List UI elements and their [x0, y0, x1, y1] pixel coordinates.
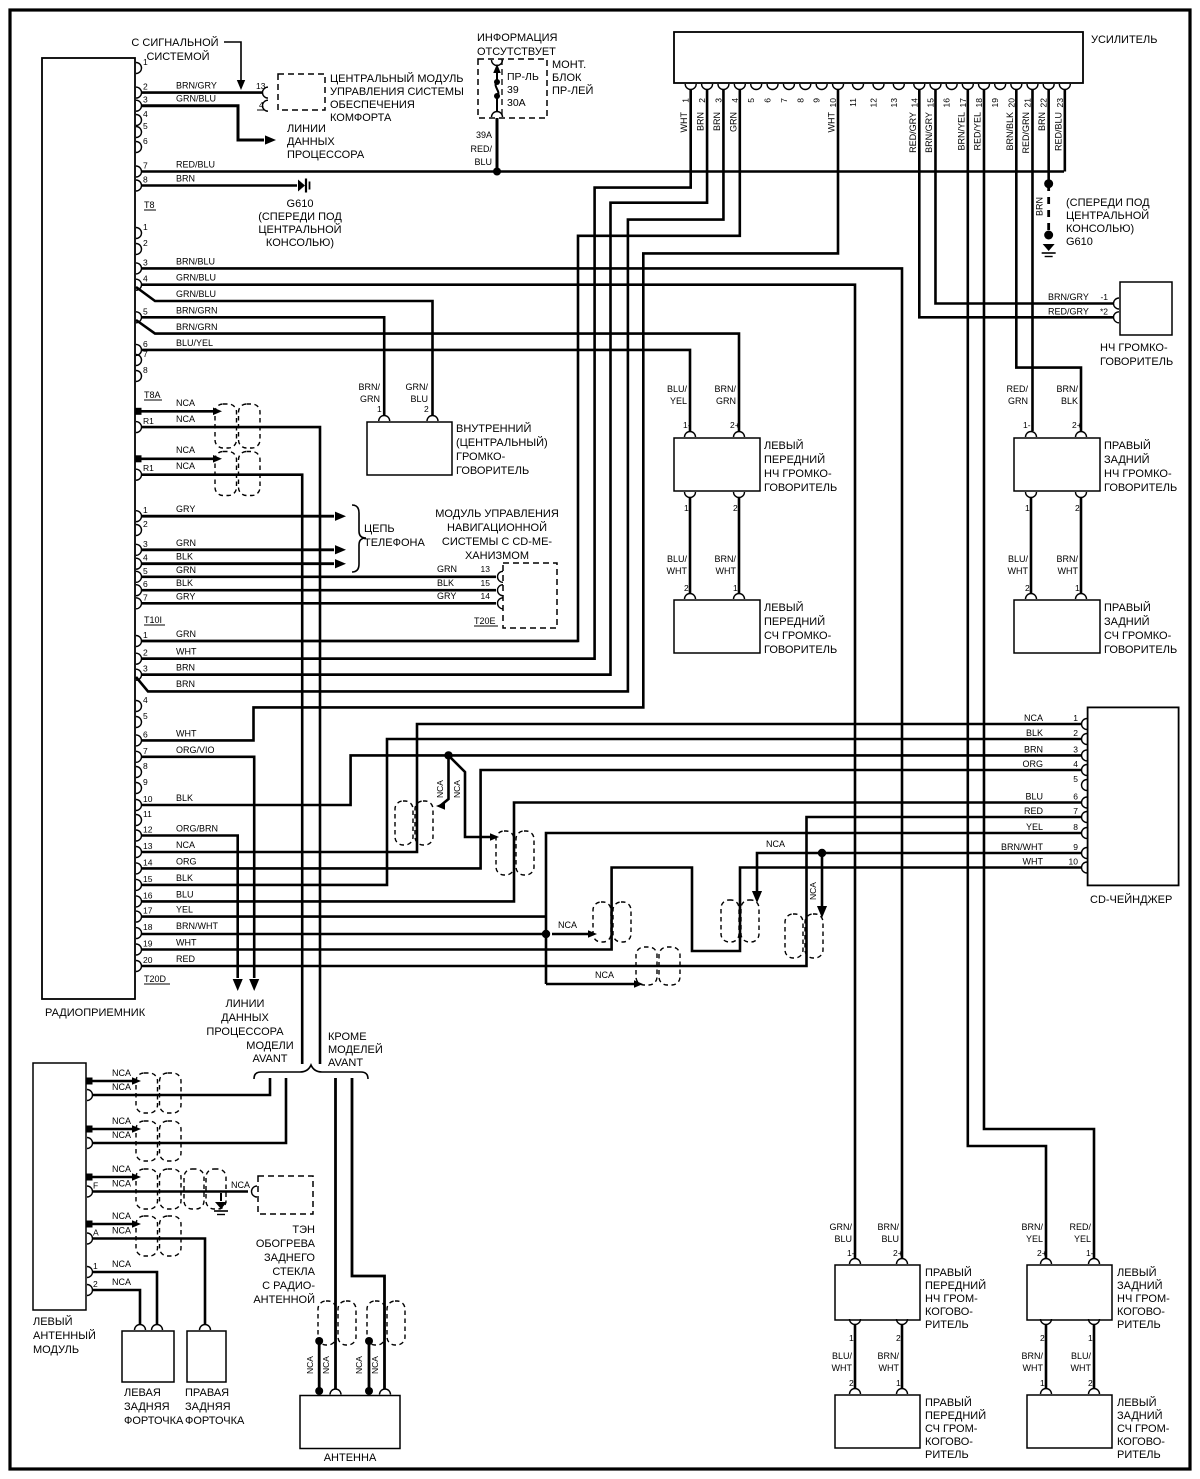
- svg-text:4: 4: [143, 695, 148, 705]
- svg-text:КОМФОРТА: КОМФОРТА: [330, 112, 392, 124]
- svg-text:NCA: NCA: [354, 1356, 364, 1374]
- svg-text:BRN/WHT: BRN/WHT: [176, 921, 218, 931]
- svg-text:NCA: NCA: [112, 1277, 131, 1287]
- svg-text:R1: R1: [143, 463, 154, 473]
- svg-text:ЗАДНИЙ: ЗАДНИЙ: [1117, 1409, 1163, 1422]
- svg-text:BRN/: BRN/: [1021, 1222, 1043, 1232]
- svg-text:BRN/GRY: BRN/GRY: [924, 112, 934, 153]
- svg-text:7: 7: [143, 349, 148, 359]
- svg-text:NCA: NCA: [112, 1226, 131, 1236]
- svg-text:BRN/: BRN/: [714, 384, 736, 394]
- svg-text:BLU/: BLU/: [667, 384, 688, 394]
- svg-text:BRN/GRY: BRN/GRY: [176, 81, 217, 91]
- svg-text:12: 12: [143, 825, 153, 835]
- svg-text:WHT: WHT: [827, 112, 837, 133]
- svg-text:10: 10: [1069, 857, 1079, 867]
- svg-text:WHT: WHT: [832, 1363, 853, 1373]
- svg-text:1: 1: [93, 1261, 98, 1271]
- svg-text:19: 19: [990, 98, 1000, 108]
- svg-text:T8A: T8A: [144, 390, 161, 400]
- svg-text:BLK: BLK: [176, 873, 193, 883]
- svg-text:GRY: GRY: [176, 591, 195, 601]
- svg-text:15: 15: [925, 98, 935, 108]
- svg-text:BLU/: BLU/: [1071, 1351, 1092, 1361]
- svg-text:RED/: RED/: [1069, 1222, 1091, 1232]
- svg-text:BRN: BRN: [1037, 112, 1047, 131]
- svg-text:GRN: GRN: [176, 629, 196, 639]
- svg-text:BRN/YEL: BRN/YEL: [956, 112, 966, 151]
- svg-text:6: 6: [143, 579, 148, 589]
- svg-text:ЛЕВАЯ: ЛЕВАЯ: [124, 1387, 161, 1399]
- svg-text:СЧ ГРОМ-: СЧ ГРОМ-: [925, 1423, 978, 1435]
- svg-text:ХАНИЗМОМ: ХАНИЗМОМ: [465, 550, 529, 562]
- svg-text:BRN: BRN: [176, 663, 195, 673]
- svg-text:АНТЕННОЙ: АНТЕННОЙ: [253, 1293, 315, 1306]
- svg-text:2: 2: [697, 98, 707, 103]
- svg-text:ПРАВАЯ: ПРАВАЯ: [185, 1387, 229, 1399]
- svg-text:WHT: WHT: [176, 938, 197, 948]
- svg-text:WHT: WHT: [1058, 566, 1079, 576]
- svg-text:BRN: BRN: [712, 112, 722, 131]
- svg-text:21: 21: [1022, 98, 1032, 108]
- svg-text:9: 9: [812, 98, 822, 103]
- svg-text:20: 20: [143, 955, 153, 965]
- svg-text:BRN/: BRN/: [1021, 1351, 1043, 1361]
- svg-text:9: 9: [143, 777, 148, 787]
- svg-text:BRN/: BRN/: [877, 1351, 899, 1361]
- svg-text:RED: RED: [1024, 806, 1044, 816]
- svg-text:2: 2: [1075, 503, 1080, 513]
- svg-text:NCA: NCA: [112, 1164, 131, 1174]
- svg-text:ORG: ORG: [1022, 759, 1043, 769]
- svg-text:КОГОВО-: КОГОВО-: [925, 1436, 973, 1448]
- svg-text:19: 19: [143, 939, 153, 949]
- svg-text:ДАННЫХ: ДАННЫХ: [287, 136, 335, 148]
- svg-text:2: 2: [143, 238, 148, 248]
- svg-text:КОГОВО-: КОГОВО-: [1117, 1306, 1165, 1318]
- svg-text:НЧ ГРОМКО-: НЧ ГРОМКО-: [764, 468, 832, 480]
- svg-text:С СИГНАЛЬНОЙ: С СИГНАЛЬНОЙ: [131, 36, 218, 49]
- svg-text:R1: R1: [143, 416, 154, 426]
- svg-text:ГОВОРИТЕЛЬ: ГОВОРИТЕЛЬ: [764, 644, 837, 656]
- svg-text:YEL: YEL: [670, 396, 687, 406]
- svg-text:РИТЕЛЬ: РИТЕЛЬ: [925, 1449, 969, 1461]
- svg-text:(СПЕРЕДИ ПОД: (СПЕРЕДИ ПОД: [258, 211, 342, 223]
- svg-text:RED/GRY: RED/GRY: [1048, 307, 1089, 317]
- svg-text:РАДИОПРИЕМНИК: РАДИОПРИЕМНИК: [45, 1007, 146, 1019]
- svg-text:9: 9: [1073, 842, 1078, 852]
- svg-text:1: 1: [1040, 1378, 1045, 1388]
- svg-text:AVANT: AVANT: [328, 1057, 363, 1069]
- svg-text:ГОВОРИТЕЛЬ: ГОВОРИТЕЛЬ: [1100, 356, 1173, 368]
- svg-text:4: 4: [143, 274, 148, 284]
- svg-text:1: 1: [377, 404, 382, 414]
- svg-text:GRN/BLU: GRN/BLU: [176, 289, 216, 299]
- svg-text:BLU/: BLU/: [832, 1351, 853, 1361]
- svg-text:NCA: NCA: [176, 445, 195, 455]
- svg-text:RED/GRN: RED/GRN: [1021, 112, 1031, 154]
- svg-text:39А: 39А: [476, 130, 492, 140]
- svg-text:30А: 30А: [507, 97, 526, 109]
- svg-text:GRN: GRN: [360, 394, 380, 404]
- svg-text:РИТЕЛЬ: РИТЕЛЬ: [925, 1319, 969, 1331]
- svg-text:2: 2: [849, 1378, 854, 1388]
- svg-text:15: 15: [143, 874, 153, 884]
- svg-text:GRN: GRN: [176, 538, 196, 548]
- svg-text:КОНСОЛЬЮ): КОНСОЛЬЮ): [266, 237, 334, 249]
- svg-text:T20E: T20E: [474, 616, 496, 626]
- svg-text:GRN: GRN: [716, 396, 736, 406]
- svg-text:WHT: WHT: [1023, 1363, 1044, 1373]
- svg-text:ЦЕПЬ: ЦЕПЬ: [364, 523, 395, 535]
- svg-text:NCA: NCA: [176, 461, 195, 471]
- svg-text:3: 3: [143, 664, 148, 674]
- svg-text:BLU/: BLU/: [667, 554, 688, 564]
- svg-text:2: 2: [733, 503, 738, 513]
- svg-text:НЧ ГРОМ-: НЧ ГРОМ-: [1117, 1293, 1170, 1305]
- svg-text:NCA: NCA: [595, 970, 614, 980]
- svg-text:39: 39: [507, 84, 519, 96]
- svg-text:WHT: WHT: [667, 566, 688, 576]
- svg-text:1: 1: [143, 505, 148, 515]
- svg-text:ИНФОРМАЦИЯ: ИНФОРМАЦИЯ: [477, 32, 558, 44]
- svg-text:18: 18: [143, 922, 153, 932]
- svg-text:ФОРТОЧКА: ФОРТОЧКА: [185, 1415, 245, 1427]
- svg-text:*2: *2: [1100, 307, 1108, 317]
- svg-text:ПЕРЕДНИЙ: ПЕРЕДНИЙ: [764, 615, 825, 628]
- svg-text:8: 8: [143, 175, 148, 185]
- svg-text:ЦЕНТРАЛЬНОЙ: ЦЕНТРАЛЬНОЙ: [1066, 209, 1149, 222]
- svg-text:BLU: BLU: [176, 889, 194, 899]
- svg-text:1: 1: [733, 583, 738, 593]
- svg-text:13: 13: [889, 98, 899, 108]
- svg-text:BLK: BLK: [437, 578, 454, 588]
- svg-text:RED/GRY: RED/GRY: [908, 112, 918, 153]
- svg-text:ORG: ORG: [176, 856, 197, 866]
- svg-text:БЛОК: БЛОК: [552, 72, 582, 84]
- svg-text:NCA: NCA: [176, 414, 195, 424]
- svg-text:8: 8: [1073, 822, 1078, 832]
- svg-text:3: 3: [143, 95, 148, 105]
- svg-text:NCA: NCA: [1024, 713, 1043, 723]
- svg-text:22: 22: [1039, 98, 1049, 108]
- svg-text:ПР-ЛЬ: ПР-ЛЬ: [507, 71, 539, 83]
- svg-text:7: 7: [779, 98, 789, 103]
- svg-text:5: 5: [1073, 774, 1078, 784]
- svg-text:2+: 2+: [730, 420, 740, 430]
- svg-text:20: 20: [1006, 98, 1016, 108]
- svg-text:BLK: BLK: [1061, 396, 1078, 406]
- svg-text:BRN/: BRN/: [877, 1222, 899, 1232]
- svg-text:(СПЕРЕДИ ПОД: (СПЕРЕДИ ПОД: [1066, 197, 1150, 209]
- svg-text:BRN/BLK: BRN/BLK: [1005, 112, 1015, 151]
- svg-text:BRN/: BRN/: [1056, 384, 1078, 394]
- svg-text:-1: -1: [1100, 292, 1108, 302]
- svg-text:УПРАВЛЕНИЯ СИСТЕМЫ: УПРАВЛЕНИЯ СИСТЕМЫ: [330, 86, 464, 98]
- svg-text:13: 13: [481, 564, 491, 574]
- svg-text:ЛЕВЫЙ: ЛЕВЫЙ: [764, 601, 804, 614]
- svg-text:8: 8: [143, 761, 148, 771]
- svg-text:3: 3: [143, 539, 148, 549]
- svg-text:BLU/: BLU/: [1008, 554, 1029, 564]
- svg-text:ЗАДНЕГО: ЗАДНЕГО: [264, 1252, 315, 1264]
- svg-text:YEL: YEL: [176, 905, 193, 915]
- svg-text:2: 2: [1025, 583, 1030, 593]
- svg-text:6: 6: [1073, 792, 1078, 802]
- svg-text:NCA: NCA: [370, 1356, 380, 1374]
- svg-text:NCA: NCA: [112, 1082, 131, 1092]
- svg-text:ОБЕСПЕЧЕНИЯ: ОБЕСПЕЧЕНИЯ: [330, 99, 415, 111]
- svg-text:ГОВОРИТЕЛЬ: ГОВОРИТЕЛЬ: [1104, 482, 1177, 494]
- svg-text:13: 13: [143, 841, 153, 851]
- svg-text:BRN/WHT: BRN/WHT: [1001, 842, 1043, 852]
- svg-text:АНТЕННА: АНТЕННА: [324, 1452, 377, 1464]
- svg-text:ЦЕНТРАЛЬНЫЙ МОДУЛЬ: ЦЕНТРАЛЬНЫЙ МОДУЛЬ: [330, 72, 464, 85]
- svg-text:2: 2: [1088, 1378, 1093, 1388]
- svg-text:GRY: GRY: [437, 591, 456, 601]
- svg-text:2: 2: [424, 404, 429, 414]
- svg-text:АНТЕННЫЙ: АНТЕННЫЙ: [33, 1329, 96, 1342]
- svg-text:2: 2: [896, 1333, 901, 1343]
- svg-text:2+: 2+: [1072, 420, 1082, 430]
- svg-text:1: 1: [684, 503, 689, 513]
- svg-text:5: 5: [143, 306, 148, 316]
- svg-text:BRN/: BRN/: [358, 382, 380, 392]
- svg-text:1: 1: [896, 1378, 901, 1388]
- svg-text:ПРАВЫЙ: ПРАВЫЙ: [1104, 601, 1151, 614]
- svg-text:14: 14: [481, 591, 491, 601]
- svg-text:BLU/YEL: BLU/YEL: [176, 338, 213, 348]
- svg-text:ЗАДНИЙ: ЗАДНИЙ: [1104, 615, 1150, 628]
- svg-text:14: 14: [909, 98, 919, 108]
- svg-text:МОНТ.: МОНТ.: [552, 59, 586, 71]
- svg-text:BRN/GRY: BRN/GRY: [1048, 292, 1089, 302]
- svg-text:5: 5: [143, 121, 148, 131]
- svg-text:NCA: NCA: [112, 1179, 131, 1189]
- svg-text:BLU: BLU: [474, 157, 492, 167]
- svg-text:RED: RED: [176, 954, 196, 964]
- svg-text:РИТЕЛЬ: РИТЕЛЬ: [1117, 1449, 1161, 1461]
- svg-text:16: 16: [143, 890, 153, 900]
- svg-text:2+: 2+: [1037, 1248, 1047, 1258]
- svg-text:ПЕРЕДНИЙ: ПЕРЕДНИЙ: [764, 453, 825, 466]
- svg-text:4: 4: [730, 98, 740, 103]
- svg-text:3: 3: [1073, 744, 1078, 754]
- svg-text:WHT: WHT: [1023, 857, 1044, 867]
- svg-text:ПРАВЫЙ: ПРАВЫЙ: [1104, 439, 1151, 452]
- svg-text:NCA: NCA: [112, 1068, 131, 1078]
- svg-text:BLU: BLU: [881, 1234, 899, 1244]
- svg-text:NCA: NCA: [112, 1130, 131, 1140]
- svg-text:NCA: NCA: [176, 840, 195, 850]
- svg-text:7: 7: [143, 746, 148, 756]
- svg-text:NCA: NCA: [112, 1211, 131, 1221]
- svg-text:T20D: T20D: [144, 974, 167, 984]
- svg-text:NCA: NCA: [176, 398, 195, 408]
- svg-text:BLU: BLU: [834, 1234, 852, 1244]
- svg-text:3: 3: [713, 98, 723, 103]
- svg-text:WHT: WHT: [1071, 1363, 1092, 1373]
- svg-text:ВНУТРЕННИЙ: ВНУТРЕННИЙ: [456, 422, 531, 435]
- svg-text:НЧ ГРОМКО-: НЧ ГРОМКО-: [1104, 468, 1172, 480]
- svg-text:СИСТЕМЫ С CD-МЕ-: СИСТЕМЫ С CD-МЕ-: [442, 536, 552, 548]
- svg-text:ПРОЦЕССОРА: ПРОЦЕССОРА: [287, 149, 365, 161]
- svg-text:ЛЕВЫЙ: ЛЕВЫЙ: [33, 1315, 73, 1328]
- svg-text:6: 6: [143, 729, 148, 739]
- svg-text:YEL: YEL: [1026, 822, 1043, 832]
- svg-text:RED/: RED/: [470, 144, 492, 154]
- svg-text:ТЕЛЕФОНА: ТЕЛЕФОНА: [364, 537, 425, 549]
- svg-text:11: 11: [848, 98, 858, 107]
- svg-text:WHT: WHT: [176, 728, 197, 738]
- svg-text:ОТСУТСТВУЕТ: ОТСУТСТВУЕТ: [477, 46, 556, 58]
- svg-text:NCA: NCA: [231, 1180, 250, 1190]
- svg-text:NCA: NCA: [112, 1259, 131, 1269]
- svg-text:4: 4: [143, 553, 148, 563]
- svg-text:NCA: NCA: [112, 1116, 131, 1126]
- svg-text:МОДУЛЬ УПРАВЛЕНИЯ: МОДУЛЬ УПРАВЛЕНИЯ: [435, 508, 559, 520]
- svg-text:GRN: GRN: [176, 565, 196, 575]
- svg-text:WHT: WHT: [879, 1363, 900, 1373]
- svg-text:КОГОВО-: КОГОВО-: [925, 1306, 973, 1318]
- svg-text:(ЦЕНТРАЛЬНЫЙ): (ЦЕНТРАЛЬНЫЙ): [456, 436, 548, 449]
- svg-text:BRN/: BRN/: [714, 554, 736, 564]
- svg-text:NCA: NCA: [452, 780, 462, 798]
- svg-text:5: 5: [143, 711, 148, 721]
- svg-text:ПЕРЕДНИЙ: ПЕРЕДНИЙ: [925, 1279, 986, 1292]
- svg-text:16: 16: [942, 98, 952, 108]
- svg-text:ЛЕВЫЙ: ЛЕВЫЙ: [1117, 1266, 1157, 1279]
- svg-text:CD-ЧЕЙНДЖЕР: CD-ЧЕЙНДЖЕР: [1090, 893, 1172, 906]
- svg-text:15: 15: [481, 578, 491, 588]
- svg-text:GRY: GRY: [176, 504, 195, 514]
- svg-text:T8: T8: [144, 200, 155, 210]
- svg-text:A: A: [93, 1228, 99, 1238]
- svg-text:5: 5: [143, 566, 148, 576]
- svg-text:10: 10: [828, 98, 838, 108]
- svg-text:RED/BLU: RED/BLU: [1053, 112, 1063, 151]
- svg-text:8: 8: [795, 98, 805, 103]
- svg-text:2: 2: [684, 583, 689, 593]
- svg-text:НЧ ГРОМ-: НЧ ГРОМ-: [925, 1293, 978, 1305]
- svg-text:ПРАВЫЙ: ПРАВЫЙ: [925, 1266, 972, 1279]
- svg-text:ЛИНИИ: ЛИНИИ: [287, 123, 326, 135]
- svg-text:BLK: BLK: [1026, 728, 1043, 738]
- svg-text:СЧ ГРОМКО-: СЧ ГРОМКО-: [1104, 630, 1172, 642]
- svg-text:ЗАДНИЙ: ЗАДНИЙ: [1104, 453, 1150, 466]
- svg-text:GRN: GRN: [1008, 396, 1028, 406]
- svg-text:17: 17: [958, 98, 968, 108]
- svg-text:ЗАДНЯЯ: ЗАДНЯЯ: [185, 1401, 231, 1413]
- svg-text:ОБОГРЕВА: ОБОГРЕВА: [256, 1238, 316, 1250]
- svg-text:ЦЕНТРАЛЬНОЙ: ЦЕНТРАЛЬНОЙ: [258, 223, 341, 236]
- svg-text:6: 6: [763, 98, 773, 103]
- svg-text:BRN/BLU: BRN/BLU: [176, 256, 215, 266]
- svg-text:GRN: GRN: [728, 112, 738, 132]
- svg-text:2: 2: [143, 648, 148, 658]
- svg-text:МОДУЛЬ: МОДУЛЬ: [33, 1344, 79, 1356]
- svg-text:2: 2: [93, 1279, 98, 1289]
- svg-text:BRN/GRN: BRN/GRN: [176, 305, 218, 315]
- svg-text:КРОМЕ: КРОМЕ: [328, 1031, 367, 1043]
- svg-text:WHT: WHT: [716, 566, 737, 576]
- svg-text:ГОВОРИТЕЛЬ: ГОВОРИТЕЛЬ: [456, 465, 529, 477]
- svg-text:BRN: BRN: [176, 679, 195, 689]
- svg-text:NCA: NCA: [321, 1356, 331, 1374]
- svg-text:BLK: BLK: [176, 578, 193, 588]
- svg-text:GRN/: GRN/: [406, 382, 429, 392]
- svg-text:GRN/: GRN/: [830, 1222, 853, 1232]
- svg-text:ЗАДНИЙ: ЗАДНИЙ: [1117, 1279, 1163, 1292]
- svg-text:1-: 1-: [847, 1248, 855, 1258]
- svg-text:СЧ ГРОМКО-: СЧ ГРОМКО-: [764, 630, 832, 642]
- svg-text:14: 14: [143, 857, 153, 867]
- svg-text:ГОВОРИТЕЛЬ: ГОВОРИТЕЛЬ: [764, 482, 837, 494]
- svg-text:GRN/BLU: GRN/BLU: [176, 273, 216, 283]
- svg-text:1: 1: [681, 98, 691, 103]
- svg-text:1: 1: [1025, 503, 1030, 513]
- svg-text:WHT: WHT: [679, 112, 689, 133]
- svg-text:ПЕРЕДНИЙ: ПЕРЕДНИЙ: [925, 1409, 986, 1422]
- svg-text:КОНСОЛЬЮ): КОНСОЛЬЮ): [1066, 223, 1134, 235]
- svg-text:МОДЕЛИ: МОДЕЛИ: [246, 1040, 293, 1052]
- svg-text:СЧ ГРОМ-: СЧ ГРОМ-: [1117, 1423, 1170, 1435]
- svg-text:1-: 1-: [1023, 420, 1031, 430]
- svg-text:4: 4: [143, 109, 148, 119]
- svg-text:2: 2: [143, 82, 148, 92]
- svg-text:1: 1: [1075, 583, 1080, 593]
- svg-text:1: 1: [1073, 713, 1078, 723]
- svg-text:GRN: GRN: [437, 564, 457, 574]
- svg-text:С РАДИО-: С РАДИО-: [262, 1280, 315, 1292]
- svg-text:ORG/VIO: ORG/VIO: [176, 745, 215, 755]
- svg-text:ЗАДНЯЯ: ЗАДНЯЯ: [124, 1401, 170, 1413]
- svg-text:17: 17: [143, 906, 153, 916]
- svg-text:ГРОМКО-: ГРОМКО-: [456, 451, 506, 463]
- svg-text:BLU: BLU: [410, 394, 428, 404]
- svg-text:ЛЕВЫЙ: ЛЕВЫЙ: [1117, 1396, 1157, 1409]
- svg-text:T10I: T10I: [144, 615, 162, 625]
- svg-text:7: 7: [143, 161, 148, 171]
- svg-text:ПР-ЛЕЙ: ПР-ЛЕЙ: [552, 84, 593, 97]
- svg-text:BLK: BLK: [176, 793, 193, 803]
- svg-text:5: 5: [746, 98, 756, 103]
- svg-text:YEL: YEL: [1074, 1234, 1091, 1244]
- svg-text:RED/YEL: RED/YEL: [972, 112, 982, 151]
- svg-text:BRN: BRN: [176, 174, 195, 184]
- svg-text:BRN: BRN: [696, 112, 706, 131]
- svg-text:F: F: [93, 1181, 98, 1191]
- svg-text:1: 1: [143, 630, 148, 640]
- svg-text:6: 6: [143, 136, 148, 146]
- svg-text:G610: G610: [287, 198, 314, 210]
- svg-text:BLU: BLU: [1025, 792, 1043, 802]
- svg-text:GRN/BLU: GRN/BLU: [176, 94, 216, 104]
- svg-text:11: 11: [143, 809, 152, 819]
- svg-text:BLK: BLK: [176, 552, 193, 562]
- svg-text:7: 7: [1073, 806, 1078, 816]
- svg-text:NCA: NCA: [305, 1356, 315, 1374]
- svg-text:1: 1: [1088, 1333, 1093, 1343]
- svg-text:ЛЕВЫЙ: ЛЕВЫЙ: [764, 439, 804, 452]
- svg-text:NCA: NCA: [808, 882, 818, 900]
- svg-text:НЧ ГРОМКО-: НЧ ГРОМКО-: [1100, 342, 1168, 354]
- svg-text:8: 8: [143, 365, 148, 375]
- svg-text:AVANT: AVANT: [252, 1053, 287, 1065]
- svg-text:ДАННЫХ: ДАННЫХ: [221, 1012, 269, 1024]
- svg-text:1: 1: [143, 222, 148, 232]
- svg-text:ПРОЦЕССОРА: ПРОЦЕССОРА: [206, 1026, 284, 1038]
